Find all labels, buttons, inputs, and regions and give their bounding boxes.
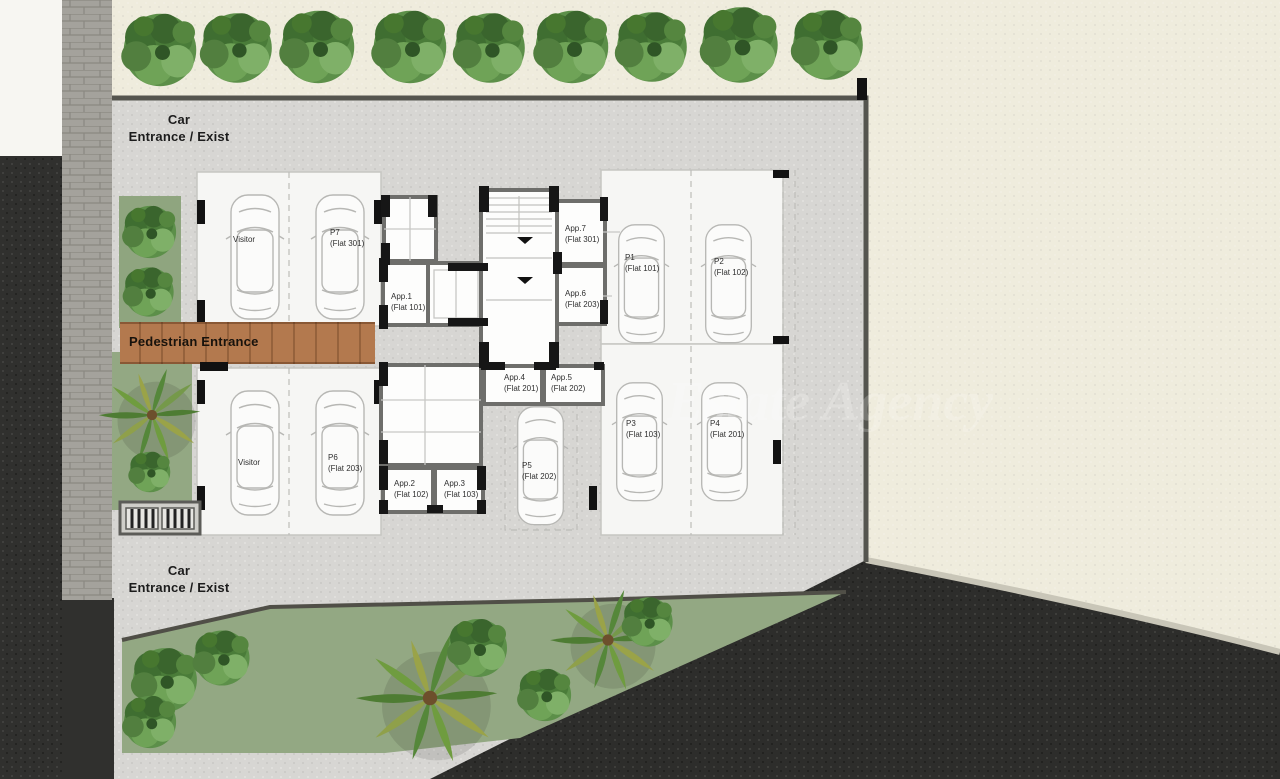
parking-label-p5: P5(Flat 202) bbox=[522, 461, 556, 483]
parking-label-p3: P3(Flat 103) bbox=[626, 419, 660, 441]
apartment-label-app2: App.2(Flat 102) bbox=[394, 479, 428, 501]
tree-row-top bbox=[121, 7, 863, 86]
apartment-label-app4: App.4(Flat 201) bbox=[504, 373, 538, 395]
car-entrance-top-label: Car Entrance / Exist bbox=[118, 112, 240, 146]
apartment-label-app5: App.5(Flat 202) bbox=[551, 373, 585, 395]
brick-wall-strip bbox=[62, 0, 112, 600]
parking-label-p4: P4(Flat 201) bbox=[710, 419, 744, 441]
apartment-label-app1: App.1(Flat 101) bbox=[391, 292, 425, 314]
apartment-label-app6: App.6(Flat 203) bbox=[565, 289, 599, 311]
entrance-gate bbox=[120, 502, 200, 534]
parking-label-p7: P7(Flat 301) bbox=[330, 228, 364, 250]
car-entrance-bottom-label: Car Entrance / Exist bbox=[118, 563, 240, 597]
parking-label-visitor-top: Visitor bbox=[233, 235, 255, 246]
walkway-step bbox=[200, 362, 228, 371]
site-plan-canvas: Car Entrance / Exist Car Entrance / Exis… bbox=[0, 0, 1280, 779]
parking-label-p1: P1(Flat 101) bbox=[625, 253, 659, 275]
apartment-label-app3: App.3(Flat 103) bbox=[444, 479, 478, 501]
top-left-white bbox=[0, 0, 64, 158]
parking-label-visitor-bottom: Visitor bbox=[238, 458, 260, 469]
parking-label-p6: P6(Flat 203) bbox=[328, 453, 362, 475]
apartment-label-app7: App.7(Flat 301) bbox=[565, 224, 599, 246]
parking-label-p2: P2(Flat 102) bbox=[714, 257, 748, 279]
pedestrian-entrance-label: Pedestrian Entrance bbox=[129, 334, 259, 349]
